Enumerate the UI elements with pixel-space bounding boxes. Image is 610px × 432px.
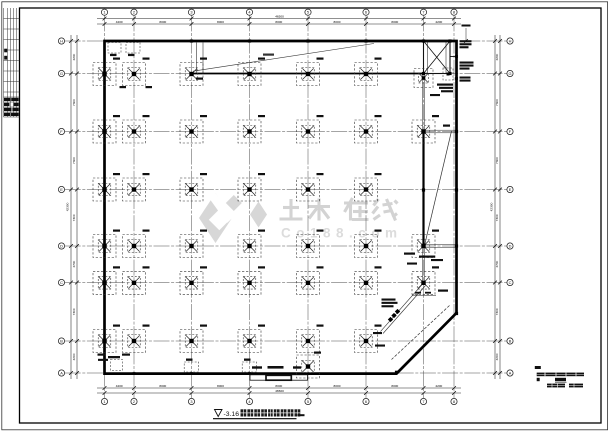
svg-text:B: B	[509, 338, 512, 343]
svg-text:4200: 4200	[435, 384, 442, 388]
svg-text:E: E	[60, 187, 63, 192]
svg-text:7300: 7300	[495, 157, 499, 164]
svg-text:-3.16: -3.16	[224, 411, 240, 418]
svg-text:8000: 8000	[391, 384, 398, 388]
svg-text:7: 7	[422, 399, 424, 404]
svg-text:2: 2	[133, 10, 135, 15]
svg-text:3: 3	[190, 399, 192, 404]
svg-text:8000: 8000	[217, 384, 224, 388]
svg-text:1: 1	[103, 10, 105, 15]
svg-text:42300: 42300	[489, 202, 493, 211]
svg-text:7300: 7300	[495, 99, 499, 106]
svg-text:8: 8	[453, 399, 455, 404]
svg-text:8000: 8000	[217, 20, 224, 24]
svg-text:5: 5	[307, 399, 309, 404]
svg-text:4700: 4700	[72, 260, 76, 267]
svg-text:4700: 4700	[495, 260, 499, 267]
svg-text:Co188.com: Co188.com	[281, 226, 403, 241]
svg-text:4200: 4200	[435, 20, 442, 24]
svg-text:3: 3	[190, 10, 192, 15]
svg-text:8000: 8000	[159, 384, 166, 388]
svg-text:A: A	[60, 370, 63, 375]
svg-text:7300: 7300	[72, 99, 76, 106]
svg-text:8000: 8000	[275, 20, 282, 24]
svg-text:8000: 8000	[334, 20, 341, 24]
svg-text:8000: 8000	[275, 384, 282, 388]
svg-text:8000: 8000	[391, 20, 398, 24]
svg-text:C: C	[60, 280, 63, 285]
svg-text:7300: 7300	[72, 308, 76, 315]
svg-text:4200: 4200	[116, 384, 123, 388]
svg-text:B: B	[60, 338, 63, 343]
svg-text:7300: 7300	[495, 308, 499, 315]
svg-text:46500: 46500	[275, 14, 284, 18]
svg-text:A: A	[509, 370, 512, 375]
svg-text:6: 6	[365, 399, 367, 404]
svg-text:H: H	[509, 38, 512, 43]
svg-text:6: 6	[365, 10, 367, 15]
svg-text:4200: 4200	[72, 353, 76, 360]
svg-text:4200: 4200	[72, 53, 76, 60]
svg-text:H: H	[60, 38, 63, 43]
svg-text:2: 2	[133, 399, 135, 404]
svg-text:D: D	[60, 243, 63, 248]
svg-text:5: 5	[307, 10, 309, 15]
svg-text:42300: 42300	[66, 202, 70, 211]
svg-text:7300: 7300	[72, 214, 76, 221]
svg-text:7300: 7300	[495, 214, 499, 221]
svg-text:7: 7	[422, 10, 424, 15]
svg-text:8: 8	[453, 10, 455, 15]
svg-text:7300: 7300	[72, 157, 76, 164]
svg-text:D: D	[509, 243, 512, 248]
svg-text:8000: 8000	[159, 20, 166, 24]
svg-text:4200: 4200	[495, 353, 499, 360]
svg-text:1: 1	[103, 399, 105, 404]
svg-text:C: C	[509, 280, 512, 285]
svg-text:8000: 8000	[334, 384, 341, 388]
svg-text:4200: 4200	[116, 20, 123, 24]
svg-text:G: G	[508, 71, 511, 76]
svg-text:E: E	[509, 187, 512, 192]
svg-text:G: G	[60, 71, 63, 76]
svg-text:4200: 4200	[495, 53, 499, 60]
svg-text:46500: 46500	[275, 389, 284, 393]
